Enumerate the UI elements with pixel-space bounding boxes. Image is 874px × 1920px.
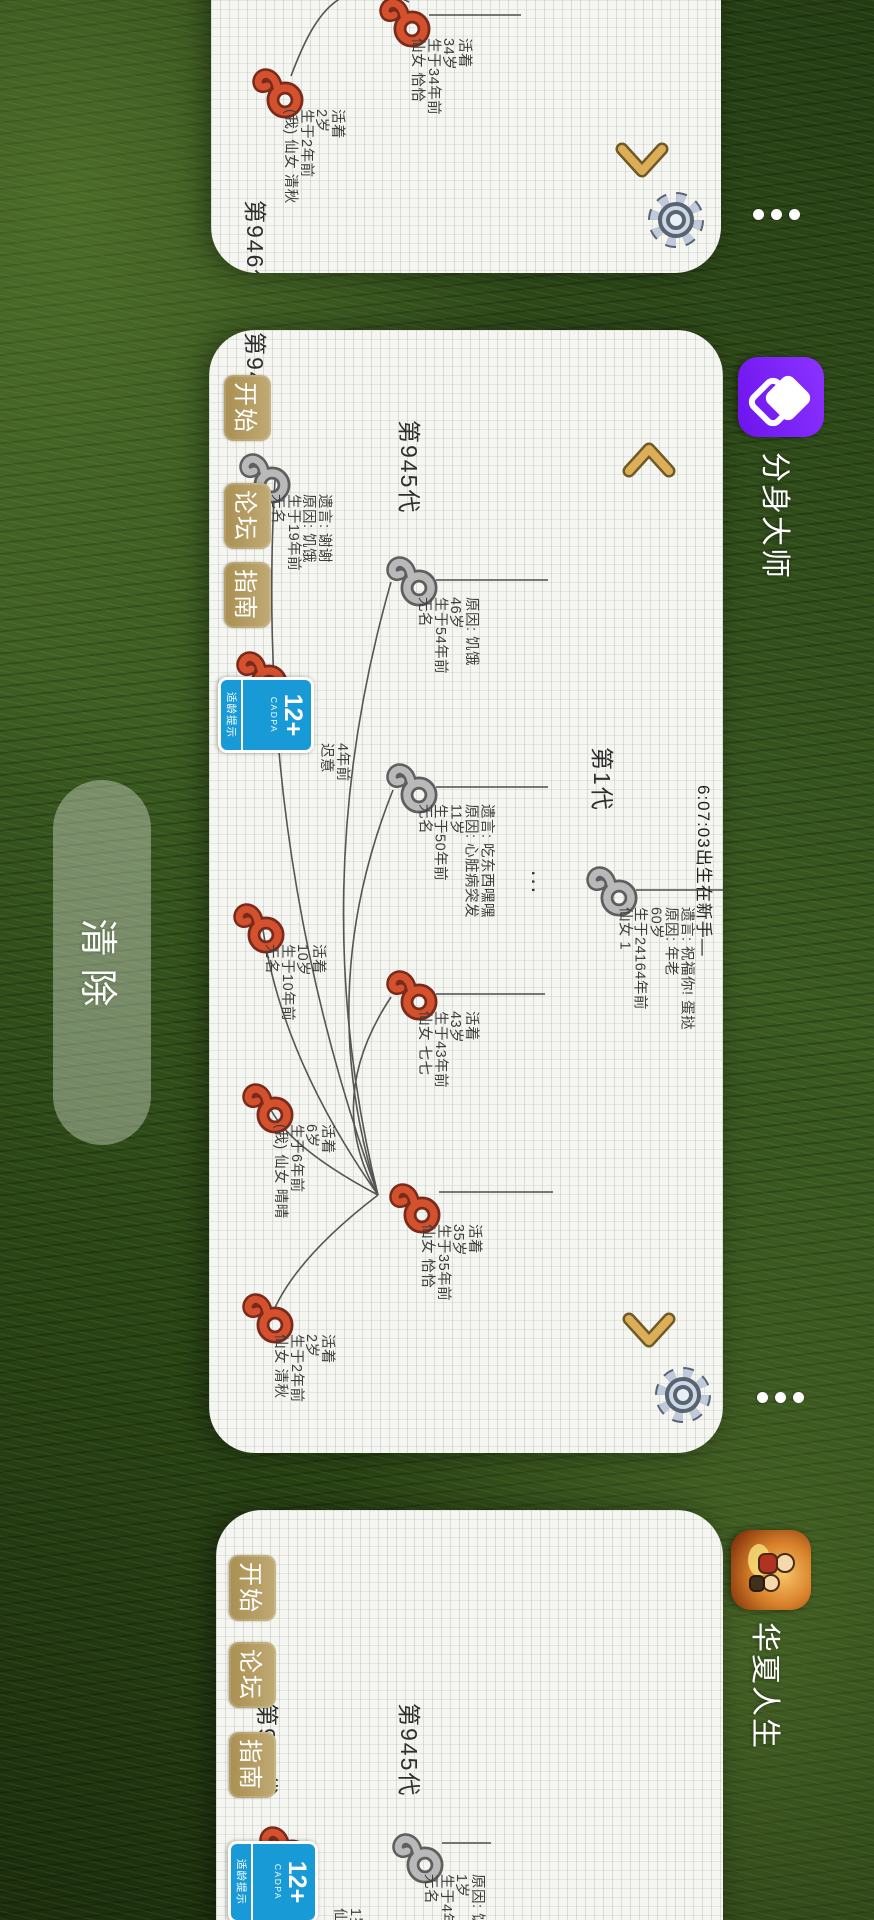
app-label-huaxia[interactable]: 华夏人生 <box>746 1622 790 1750</box>
generation-label: 第946代 <box>240 200 274 273</box>
age-rating-text: 12+ <box>284 1861 310 1903</box>
character-node: 无名生于4年前1岁原因: 饥饿 <box>385 1830 444 1886</box>
character-info-lines: 仙女 七七生于43年前43岁活着 <box>416 1011 478 1088</box>
generation-label: 第945代 <box>394 1703 428 1797</box>
cadpa-age-rating-badge: 12+ CADPA 适龄提示 <box>228 1841 318 1920</box>
clear-all-button[interactable]: 清除 <box>53 780 151 1145</box>
character-node: 仙女 恰恰生于34年前34岁活着 <box>372 0 431 50</box>
chevron-right-icon <box>613 137 671 183</box>
game-menu-button: 指南 <box>224 562 271 628</box>
character-info-lines: 仙女 恰恰生于34年前34岁活着 <box>409 38 471 115</box>
character-node: 无名生于54年前46岁原因: 饥饿 <box>379 553 438 609</box>
character-node: 仙女 1生于24164年前60岁原因: 年老遗言: 祝福你! 蛋挞 <box>579 863 638 919</box>
chevron-right-icon <box>620 1307 678 1353</box>
character-node: 无名生于10年前10岁活着 <box>226 900 285 956</box>
character-info-lines: 无名生于54年前46岁原因: 饥饿 <box>416 597 478 674</box>
character-node: 仙女 七七生于43年前43岁活着 <box>379 967 438 1023</box>
character-info-lines: 无名生于10年前10岁活着 <box>263 944 325 1021</box>
card-more-menu-icon[interactable] <box>753 209 800 220</box>
screenshot-root: 第946代仙女 恰恰生于34年前34岁活着(我) 仙女 清秋生于2年前2岁活着第… <box>0 0 874 1920</box>
character-info-lines: 仙女 1生于24164年前60岁原因: 年老遗言: 祝福你! 蛋挞 <box>616 907 694 1030</box>
character-info-lines: 仙女1岁 <box>331 1908 362 1920</box>
game-menu-button: 论坛 <box>229 1642 276 1708</box>
character-info-lines: (我) 仙女 晴晴生于6年前6岁活着 <box>272 1124 334 1219</box>
card-left[interactable]: 第946代仙女 恰恰生于34年前34岁活着(我) 仙女 清秋生于2年前2岁活着 <box>211 0 721 273</box>
character-info-lines: 仙女 恰恰生于35年前35岁活着 <box>419 1224 481 1301</box>
character-node: (我) 仙女 清秋生于2年前2岁活着 <box>245 65 304 121</box>
parent-child-glyph <box>731 1530 811 1610</box>
age-tip-text: 适龄提示 <box>231 1844 253 1920</box>
character-node: (我) 仙女 晴晴生于6年前6岁活着 <box>235 1080 294 1136</box>
character-node: 无名生于50年前11岁原因: 心脏病突发遗言: 吃东西嘿嘿 <box>379 760 438 816</box>
game-menu-button: 论坛 <box>224 483 271 549</box>
cadpa-age-rating-badge: 12+ CADPA 适龄提示 <box>218 677 314 753</box>
character-node: 仙女 清秋生于2年前2岁活着 <box>235 1290 294 1346</box>
age-rating-text: 12+ <box>280 694 306 736</box>
character-info-lines: 无名生于4年前1岁原因: 饥饿 <box>422 1874 484 1920</box>
character-info-lines: 无名生于19年前原因: 饥饿遗言: 谢谢 <box>269 494 331 571</box>
chevron-left-icon <box>620 437 678 483</box>
generation-label: 第945代 <box>394 420 428 514</box>
game-event-marquee: 6:07:03出生在新手— <box>693 785 718 957</box>
game-menu-button: 开始 <box>229 1555 276 1621</box>
cadpa-text: CADPA <box>269 697 279 733</box>
generation-label: ... <box>526 870 553 895</box>
card-right[interactable]: 第946代第945代无名生于4年前1岁原因: 饥饿仙女1岁开始论坛指南12+ C… <box>216 1510 723 1920</box>
game-menu-button: 开始 <box>224 375 271 441</box>
game-menu-button: 指南 <box>229 1732 276 1798</box>
character-info-lines: 仙女 清秋生于2年前2岁活着 <box>272 1334 334 1403</box>
age-tip-text: 适龄提示 <box>221 680 243 750</box>
landscape-recents-stage: 第946代仙女 恰恰生于34年前34岁活着(我) 仙女 清秋生于2年前2岁活着第… <box>0 0 874 1920</box>
card-middle[interactable]: 第946代第945代第1代...6:07:03出生在新手—无名生于19年前原因:… <box>209 330 723 1453</box>
clone-stack-icon[interactable] <box>738 357 824 437</box>
character-node: 仙女 恰恰生于35年前35岁活着 <box>382 1180 441 1236</box>
character-info-lines: (我) 仙女 清秋生于2年前2岁活着 <box>282 109 344 204</box>
gear-icon <box>651 1363 715 1427</box>
app-label-fenshen[interactable]: 分身大师 <box>756 452 800 580</box>
gear-icon <box>644 188 708 252</box>
character-info-lines: 迟意4年前 <box>318 743 349 782</box>
stacked-squares-glyph <box>738 357 824 437</box>
card-more-menu-icon[interactable] <box>757 1392 804 1403</box>
generation-label: 第1代 <box>587 747 621 812</box>
cadpa-text: CADPA <box>273 1864 283 1900</box>
huaxia-game-icon[interactable] <box>731 1530 811 1610</box>
character-info-lines: 无名生于50年前11岁原因: 心脏病突发遗言: 吃东西嘿嘿 <box>416 804 494 918</box>
